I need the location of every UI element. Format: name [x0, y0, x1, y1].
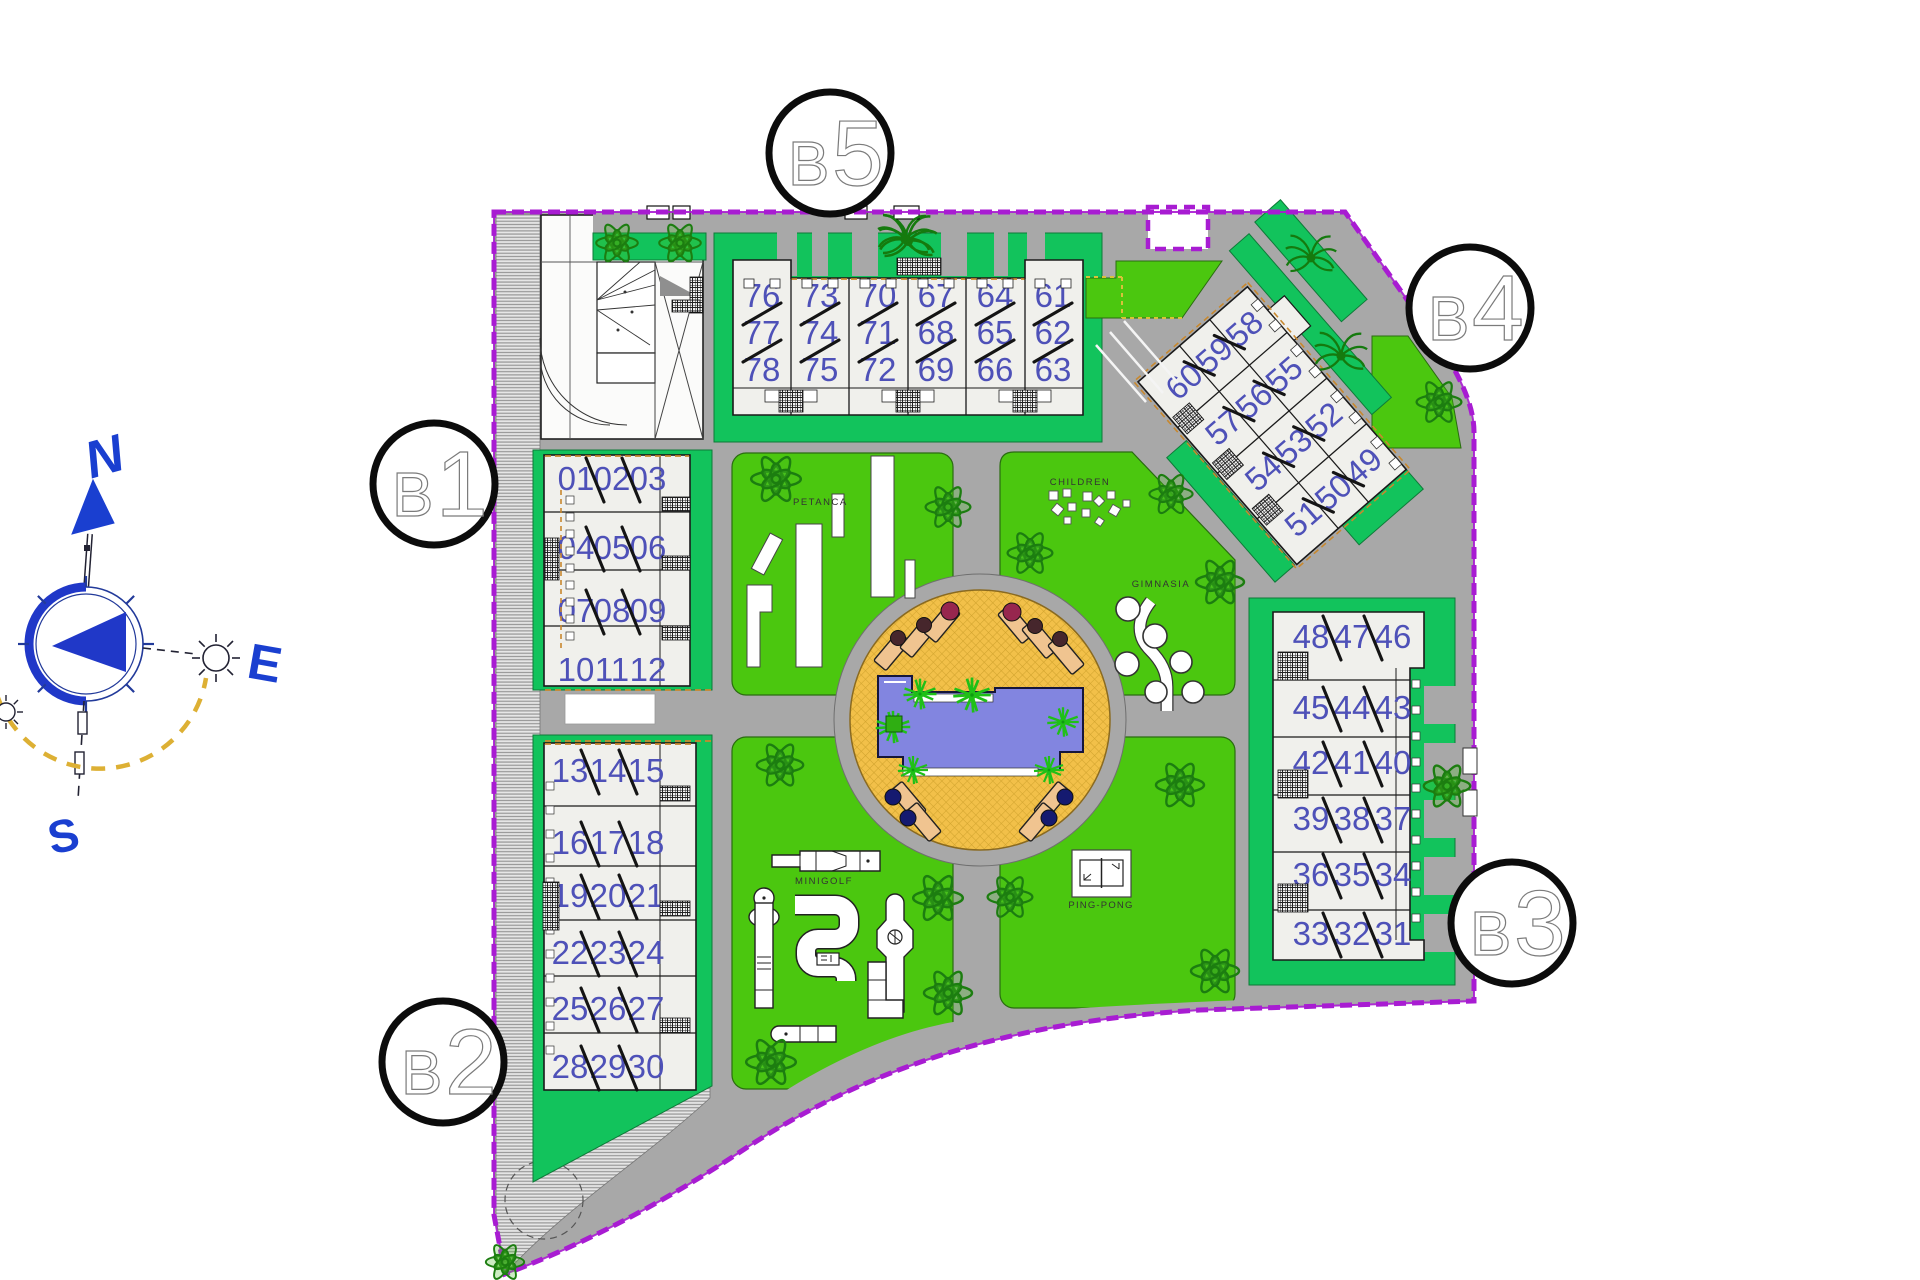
svg-text:63: 63	[1035, 351, 1072, 388]
svg-text:B: B	[1470, 900, 1511, 969]
svg-text:4: 4	[1472, 256, 1524, 360]
svg-text:41: 41	[1334, 744, 1371, 781]
svg-text:77: 77	[744, 314, 781, 351]
svg-text:65: 65	[977, 314, 1014, 351]
svg-text:32: 32	[1334, 915, 1371, 952]
svg-text:2: 2	[445, 1010, 497, 1114]
svg-text:3: 3	[1514, 871, 1566, 975]
svg-text:34: 34	[1375, 856, 1412, 893]
svg-text:12: 12	[630, 651, 667, 688]
svg-text:37: 37	[1375, 800, 1412, 837]
svg-text:46: 46	[1375, 618, 1412, 655]
svg-text:66: 66	[977, 351, 1014, 388]
svg-text:1: 1	[436, 432, 488, 536]
svg-text:39: 39	[1293, 800, 1330, 837]
svg-text:PETANCA: PETANCA	[793, 497, 848, 508]
svg-text:11: 11	[595, 651, 629, 688]
svg-text:B: B	[1428, 285, 1469, 354]
svg-text:33: 33	[1293, 915, 1330, 952]
svg-text:PING-PONG: PING-PONG	[1068, 900, 1133, 911]
svg-text:78: 78	[744, 351, 781, 388]
svg-text:MINIGOLF: MINIGOLF	[795, 876, 853, 887]
svg-text:71: 71	[860, 314, 897, 351]
svg-text:31: 31	[1375, 915, 1412, 952]
svg-text:62: 62	[1035, 314, 1072, 351]
svg-text:45: 45	[1293, 689, 1330, 726]
svg-text:GIMNASIA: GIMNASIA	[1132, 579, 1190, 590]
svg-text:35: 35	[1334, 856, 1371, 893]
svg-text:B: B	[401, 1039, 442, 1108]
svg-text:48: 48	[1293, 618, 1330, 655]
svg-text:47: 47	[1334, 618, 1371, 655]
svg-text:68: 68	[918, 314, 955, 351]
svg-text:40: 40	[1375, 744, 1412, 781]
svg-text:44: 44	[1334, 689, 1371, 726]
svg-text:75: 75	[802, 351, 839, 388]
svg-text:5: 5	[832, 101, 884, 205]
svg-text:43: 43	[1375, 689, 1412, 726]
svg-text:74: 74	[802, 314, 839, 351]
svg-text:72: 72	[860, 351, 897, 388]
svg-text:38: 38	[1334, 800, 1371, 837]
svg-text:CHILDREN: CHILDREN	[1050, 477, 1111, 488]
svg-text:B: B	[392, 461, 433, 530]
svg-text:69: 69	[918, 351, 955, 388]
svg-text:B: B	[788, 130, 829, 199]
svg-text:10: 10	[558, 651, 595, 688]
